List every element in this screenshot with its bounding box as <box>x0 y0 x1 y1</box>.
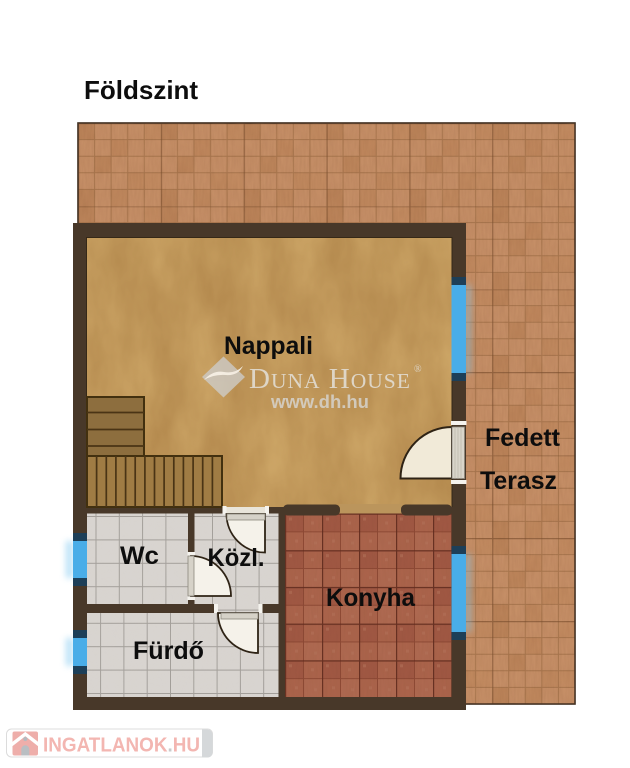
svg-text:Fedett: Fedett <box>485 424 561 452</box>
svg-text:Wc: Wc <box>120 542 159 570</box>
svg-text:Közl.: Közl. <box>208 544 265 572</box>
svg-text:Terasz: Terasz <box>480 467 557 495</box>
svg-text:Földszint: Földszint <box>84 75 198 105</box>
svg-text:www.dh.hu: www.dh.hu <box>270 391 369 412</box>
svg-text:INGATLANOK.HU: INGATLANOK.HU <box>43 734 200 757</box>
svg-text:Nappali: Nappali <box>224 332 313 360</box>
svg-text:Fürdő: Fürdő <box>133 637 204 665</box>
svg-text:®: ® <box>414 364 422 375</box>
svg-text:Konyha: Konyha <box>326 584 416 612</box>
